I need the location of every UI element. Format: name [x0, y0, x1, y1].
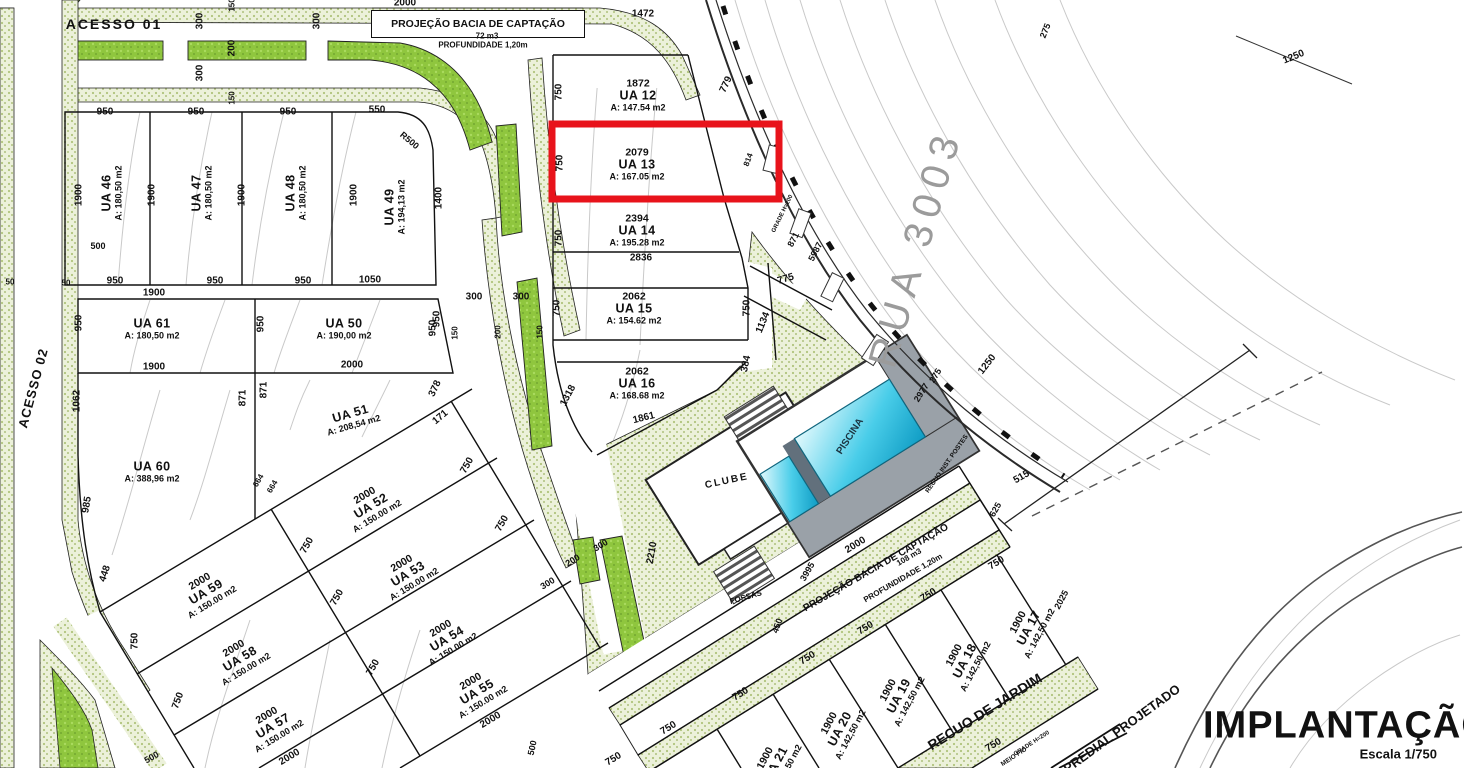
road-acesso2	[14, 0, 62, 630]
corridor	[740, 262, 772, 372]
verge-lot-top	[55, 88, 510, 218]
green-island	[188, 41, 306, 60]
selected-lot-highlight[interactable]	[552, 124, 779, 199]
verge-left	[0, 8, 14, 768]
verge-left-inner	[62, 0, 150, 700]
site-plan-drawing	[0, 0, 1464, 768]
site-plan: ACESSO 01 ACESSO 02 RUA 3003 PROJEÇÃO BA…	[0, 0, 1464, 768]
